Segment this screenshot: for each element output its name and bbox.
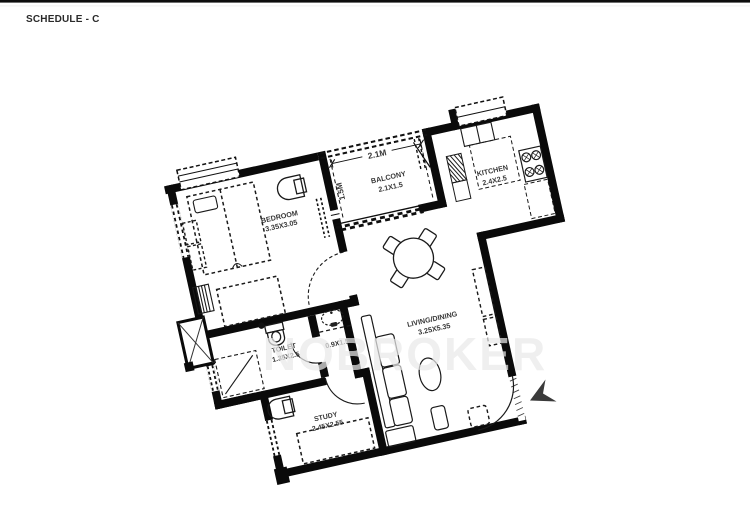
svg-text:1.5M: 1.5M [334,181,347,201]
svg-text:SCHEDULE - C: SCHEDULE - C [26,14,100,25]
svg-text:NOBROKER: NOBROKER [263,328,547,380]
svg-text:2.1M: 2.1M [367,147,388,161]
